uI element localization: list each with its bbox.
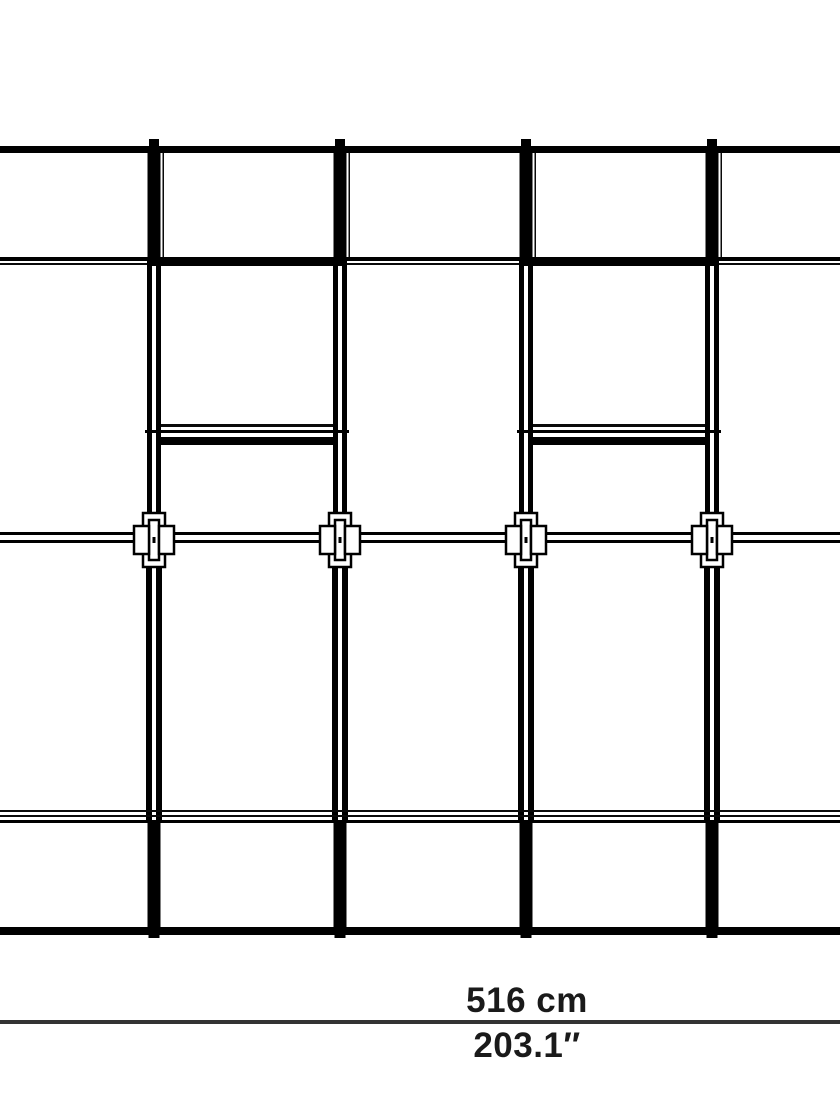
width-label-metric: 516 cm	[466, 981, 588, 1020]
lower-rail	[0, 810, 840, 823]
bottom-beam	[0, 927, 840, 935]
dimension-line	[0, 1020, 840, 1024]
bay-header-bar	[519, 257, 719, 266]
width-label-imperial: 203.1″	[473, 1026, 580, 1065]
frame-elevation-drawing: 516 cm 203.1″	[0, 0, 840, 1120]
bay-header-bar	[147, 257, 347, 266]
